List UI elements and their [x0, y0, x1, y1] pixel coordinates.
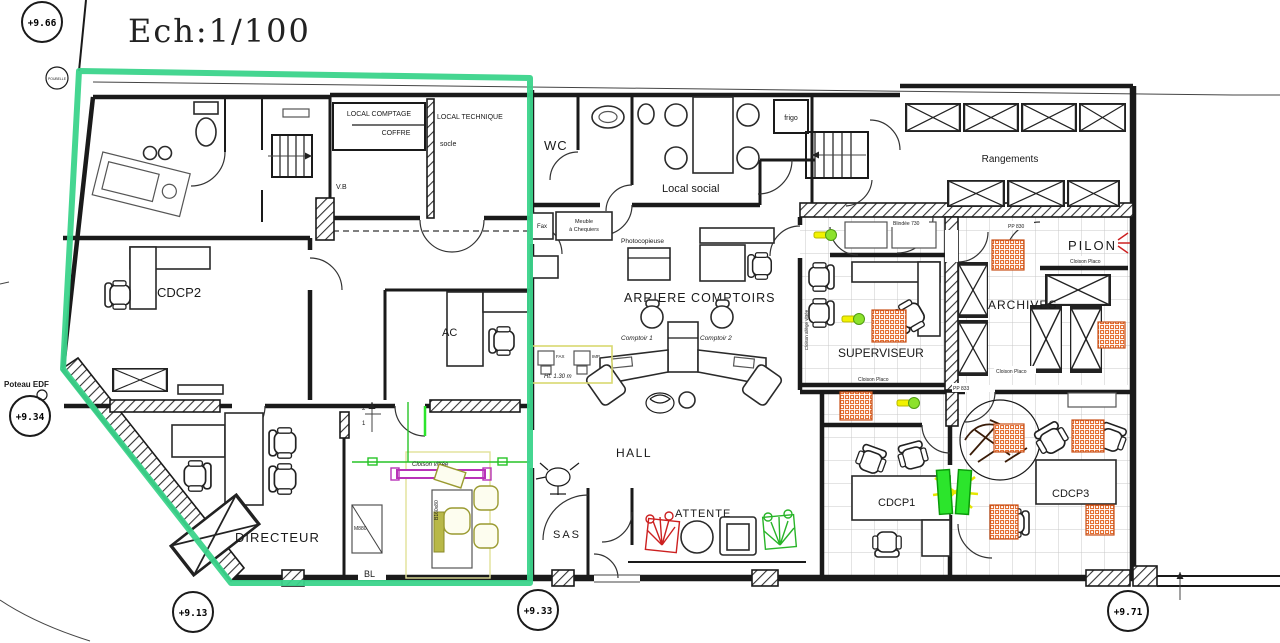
- wc-zone: [592, 104, 654, 128]
- floor-plan-canvas: LOCAL COMPTAGE COFFRE LOCAL TECHNIQUE so…: [0, 0, 1280, 643]
- level-bottom-center: +9.33: [524, 606, 553, 617]
- staircase-upper-left: [268, 135, 312, 177]
- ht130-label: Ht: 1.30 m: [544, 374, 572, 380]
- poteau-edf-label: Poteau EDF: [4, 380, 49, 389]
- cdcp2-label: CDCP2: [157, 285, 201, 300]
- section-mark-1: 1: [362, 421, 366, 427]
- local-comptage-label: LOCAL COMPTAGE: [347, 111, 412, 118]
- bl-marker: BL: [358, 566, 386, 580]
- wc-label: WC: [544, 138, 568, 153]
- cloison-placo-superviseur: Cloison Placo: [855, 374, 897, 383]
- photocopieuse-box: [628, 248, 670, 280]
- comptoir1-label: Comptoir 1: [621, 335, 653, 342]
- vb-label: V.B: [336, 184, 347, 191]
- poubelle-label: POUBELLE: [48, 77, 67, 81]
- sas-label: SAS: [553, 529, 581, 541]
- meuble-label-2: à Chequiers: [569, 227, 599, 233]
- ac-label: AC: [442, 327, 457, 339]
- plant-green: [763, 510, 797, 549]
- floor-plan-drawing: LOCAL COMPTAGE COFFRE LOCAL TECHNIQUE so…: [0, 0, 1280, 643]
- level-marker-bottom-center: +9.33: [518, 590, 558, 630]
- directeur-furniture: [171, 413, 296, 575]
- fax-box: Fax: [531, 213, 553, 239]
- archives-label: ARCHIVES: [988, 298, 1057, 312]
- b160-label: B160x80: [434, 500, 440, 520]
- socle-label: socle: [440, 141, 456, 148]
- blindee-label: Blindée 730: [893, 221, 920, 227]
- meuble-chequiers-box: Meuble à Chequiers: [556, 212, 612, 240]
- level-bottom-right: +9.71: [1114, 607, 1143, 618]
- cloison-allege-label: Cloison allège vitrée: [804, 309, 809, 350]
- meuble-label-1: Meuble: [575, 219, 593, 225]
- cdcp1-label: CDCP1: [878, 497, 915, 509]
- comptoir2-label: Comptoir 2: [700, 335, 732, 342]
- coffre-label: COFFRE: [382, 130, 411, 137]
- sanitary-block: [92, 97, 312, 222]
- level-marker-bottom-right: +9.71: [1108, 591, 1148, 631]
- local-technique-label: LOCAL TECHNIQUE: [437, 114, 503, 121]
- staircase-middle: [806, 132, 868, 178]
- pilon-label: PILON: [1068, 238, 1117, 253]
- level-left: +9.34: [16, 412, 45, 423]
- fax-small-label: FAX: [556, 354, 565, 359]
- photocopieuse-label: Photocopieuse: [621, 238, 664, 245]
- level-marker-left: +9.34: [10, 396, 50, 436]
- rangements-label: Rangements: [982, 154, 1039, 165]
- frigo-box: frigo: [774, 100, 808, 133]
- hall-swivel-chair: [536, 463, 579, 495]
- pp830-label: PP 830: [1008, 224, 1025, 230]
- fax-label: Fax: [537, 224, 547, 230]
- pp833-label-group: PP 833: [952, 383, 978, 392]
- level-bottom-left: +9.13: [179, 608, 208, 619]
- m880-cabinet: M880: [352, 505, 382, 553]
- local-social-label: Local social: [662, 183, 719, 195]
- comptoir-assembly: Comptoir 1 Comptoir 2: [585, 300, 783, 413]
- equipment-machine: [92, 152, 190, 216]
- blindee-door-label: Blindée 730: [891, 218, 929, 227]
- m880-label: M880: [354, 526, 367, 532]
- local-comptage-box: LOCAL COMPTAGE COFFRE: [333, 103, 425, 150]
- highlighted-office: Cloison vitrée M880 B160x80: [352, 402, 530, 578]
- superviseur-label: SUPERVISEUR: [838, 346, 924, 360]
- local-social-furniture: [665, 97, 759, 173]
- frigo-label: frigo: [784, 115, 798, 122]
- scale-title: Ech:1/100: [128, 12, 311, 50]
- cdcp3-label: CDCP3: [1052, 488, 1089, 500]
- level-marker-top-left: +9.66: [22, 2, 62, 42]
- poubelle-marker: POUBELLE: [46, 67, 68, 89]
- directeur-label: DIRECTEUR: [235, 530, 320, 545]
- ac-furniture: [447, 292, 528, 366]
- cdcp2-furniture: [105, 247, 223, 394]
- cloison-placo-label-2: Cloison Placo: [1070, 259, 1101, 265]
- imp-small-label: IMP: [592, 354, 600, 359]
- pp833-label: PP 833: [953, 386, 970, 392]
- cloison-placo-label-3: Cloison Placo: [996, 369, 1027, 375]
- bl-label: BL: [364, 569, 375, 579]
- armchair: [720, 517, 756, 555]
- level-marker-bottom-left: +9.13: [173, 592, 213, 632]
- cloison-placo-label-1: Cloison Placo: [858, 377, 889, 383]
- level-top-left: +9.66: [28, 18, 57, 29]
- hall-label: HALL: [616, 446, 652, 460]
